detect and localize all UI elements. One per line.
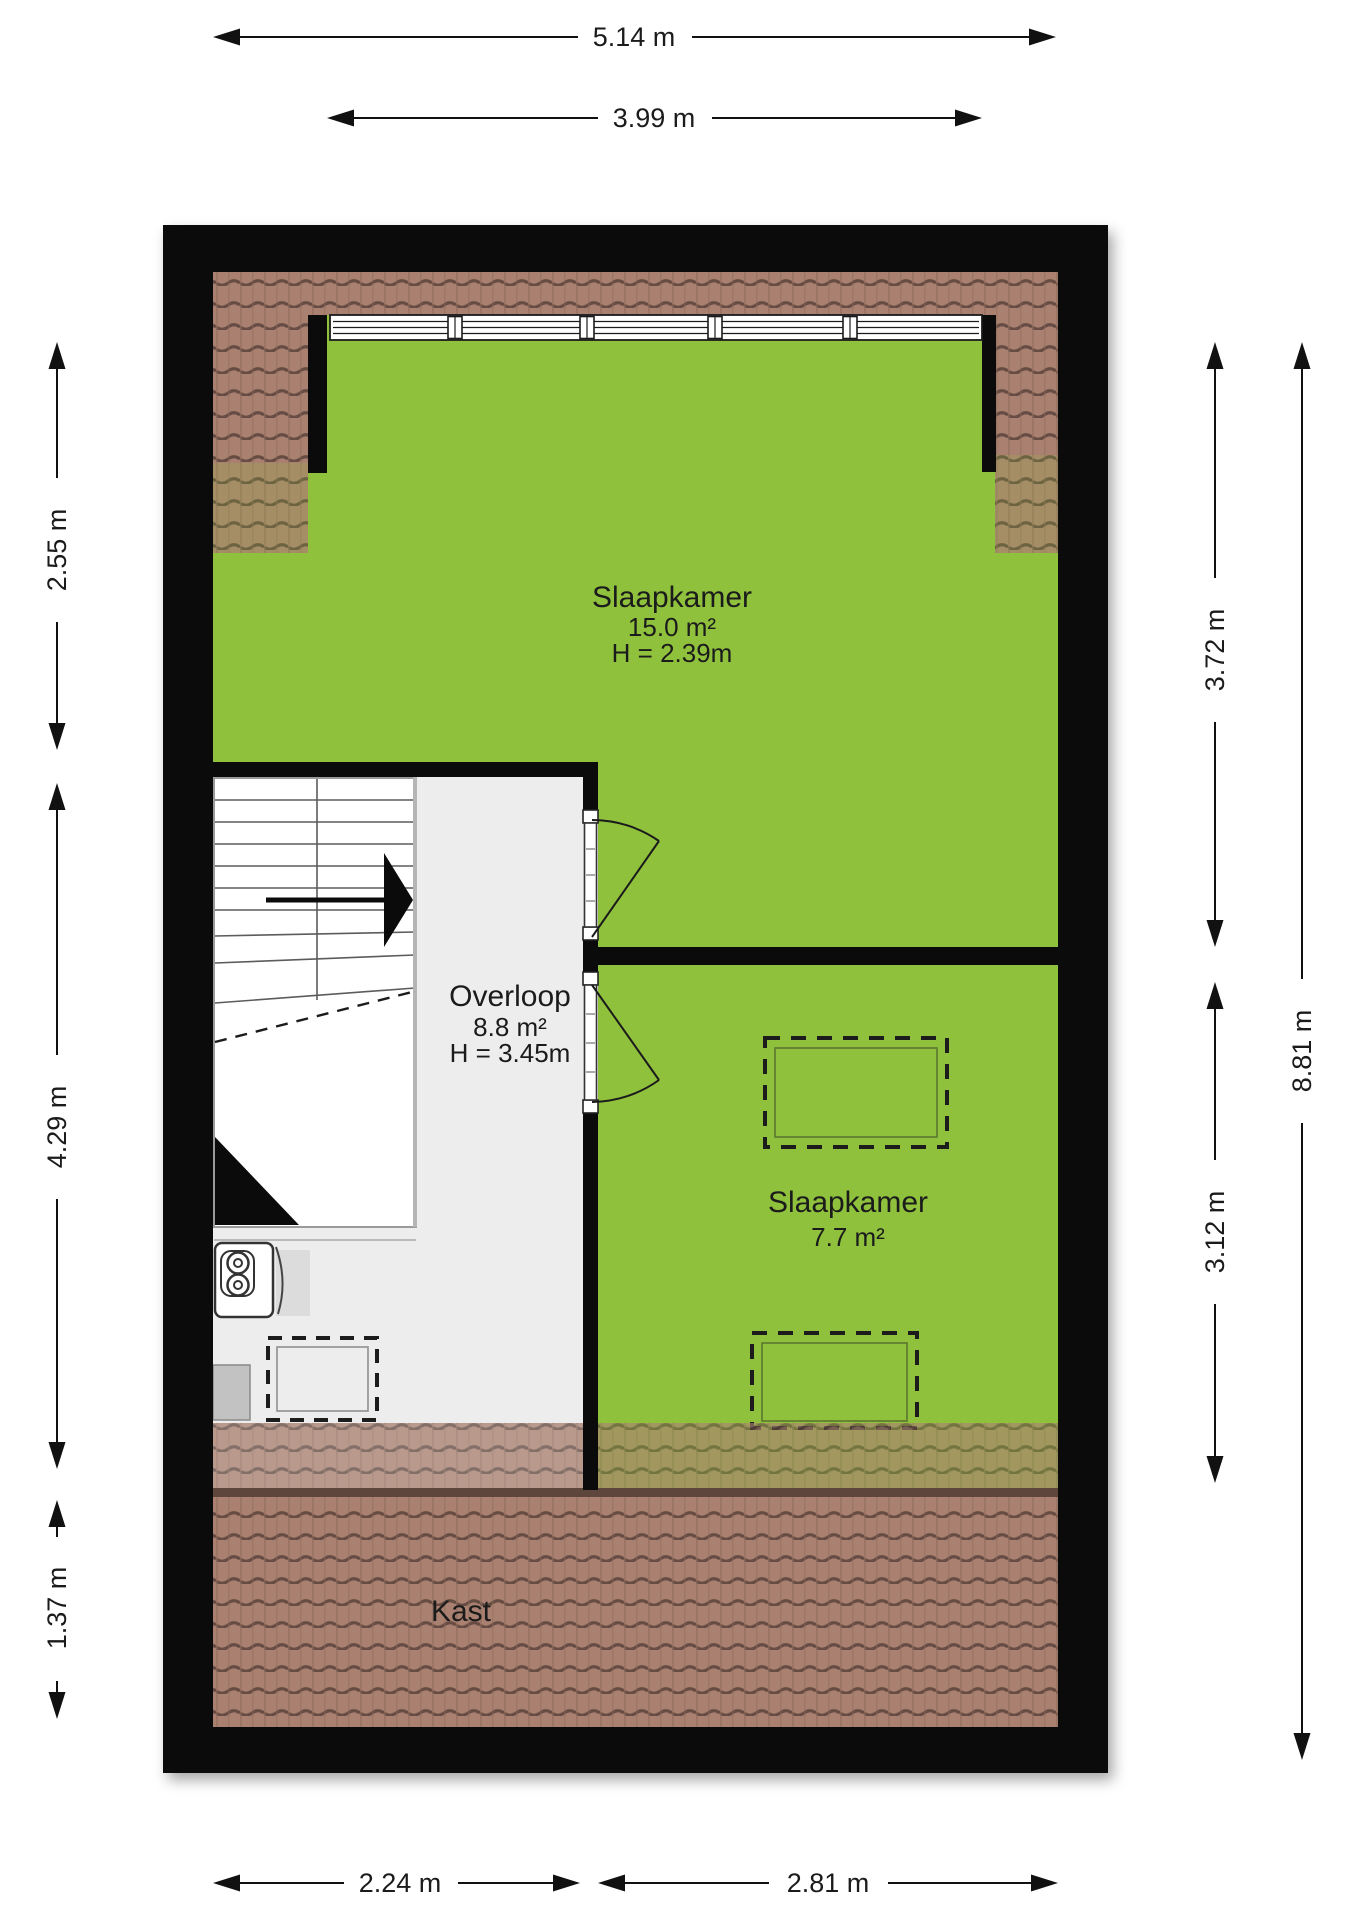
landing-height: H = 3.45m — [450, 1038, 571, 1068]
roof-strip-right-lower — [995, 455, 1058, 553]
wall-right — [1058, 225, 1108, 1773]
roof-overlay-landing — [213, 1423, 583, 1488]
cabinet — [213, 1365, 250, 1420]
arrow-left-icon — [213, 1875, 240, 1892]
arrow-up-icon — [1207, 982, 1224, 1009]
arrow-down-icon — [1294, 1733, 1311, 1760]
arrow-left-icon — [213, 29, 240, 46]
floorplan-page: Slaapkamer 15.0 m² H = 2.39m Overloop 8.… — [0, 0, 1358, 1920]
bedroom-small-area: 7.7 m² — [811, 1222, 885, 1252]
roof-strip-left-upper — [213, 315, 308, 463]
boiler-unit — [215, 1243, 273, 1317]
floor-plan: Slaapkamer 15.0 m² H = 2.39m Overloop 8.… — [163, 225, 1108, 1773]
wall-bottom — [163, 1727, 1108, 1773]
arrow-right-icon — [553, 1875, 580, 1892]
arrow-down-icon — [49, 723, 66, 750]
dim-right-total-label: 8.81 m — [1287, 1010, 1317, 1093]
wall-between-bedrooms — [583, 947, 1058, 965]
floorplan-drawing: Slaapkamer 15.0 m² H = 2.39m Overloop 8.… — [0, 0, 1358, 1920]
arrow-up-icon — [49, 783, 66, 810]
bedroom-large-name: Slaapkamer — [592, 581, 752, 614]
arrow-right-icon — [1029, 29, 1056, 46]
wall-landing-top — [213, 762, 598, 777]
stairs — [214, 777, 417, 1240]
dim-bottom-left-label: 2.24 m — [359, 1868, 442, 1898]
roof-seam — [213, 1488, 1058, 1497]
arrow-right-icon — [1031, 1875, 1058, 1892]
dim-left-bottom-label: 1.37 m — [42, 1567, 72, 1650]
landing-name: Overloop — [449, 980, 571, 1013]
dim-top-inner-label: 3.99 m — [613, 103, 696, 133]
arrow-left-icon — [598, 1875, 625, 1892]
stairs-side-wall — [413, 777, 417, 1227]
arrow-up-icon — [49, 342, 66, 369]
closet-name: Kast — [431, 1595, 492, 1628]
roof-strip-top — [213, 272, 1058, 315]
bedroom-large-height: H = 2.39m — [612, 638, 733, 668]
window-jamb-right — [982, 315, 996, 472]
roof-closet-area — [213, 1497, 1058, 1727]
arrow-down-icon — [49, 1692, 66, 1719]
wall-top — [163, 225, 1108, 272]
window-jamb-left — [308, 315, 327, 473]
wall-divider-upper — [583, 762, 598, 810]
arrow-down-icon — [1207, 920, 1224, 947]
arrow-right-icon — [955, 110, 982, 127]
window-band — [330, 315, 982, 340]
dim-right-bottom-label: 3.12 m — [1200, 1191, 1230, 1274]
wall-left — [163, 225, 213, 1773]
bedroom-small-name: Slaapkamer — [768, 1186, 928, 1219]
arrow-left-icon — [327, 110, 354, 127]
roof-strip-left-lower — [213, 463, 308, 553]
wall-divider-lower — [583, 1113, 598, 1490]
roof-overlay-bedroom-small — [583, 1423, 1058, 1488]
dim-left-top-label: 2.55 m — [42, 509, 72, 592]
arrow-up-icon — [49, 1500, 66, 1527]
dim-top-outer-label: 5.14 m — [593, 22, 676, 52]
roof-strip-right-upper — [995, 315, 1058, 455]
arrow-up-icon — [1207, 342, 1224, 369]
arrow-up-icon — [1294, 342, 1311, 369]
dim-left-middle-label: 4.29 m — [42, 1086, 72, 1169]
dim-bottom-right-label: 2.81 m — [787, 1868, 870, 1898]
arrow-down-icon — [1207, 1456, 1224, 1483]
arrow-down-icon — [49, 1442, 66, 1469]
dim-right-top-label: 3.72 m — [1200, 609, 1230, 692]
